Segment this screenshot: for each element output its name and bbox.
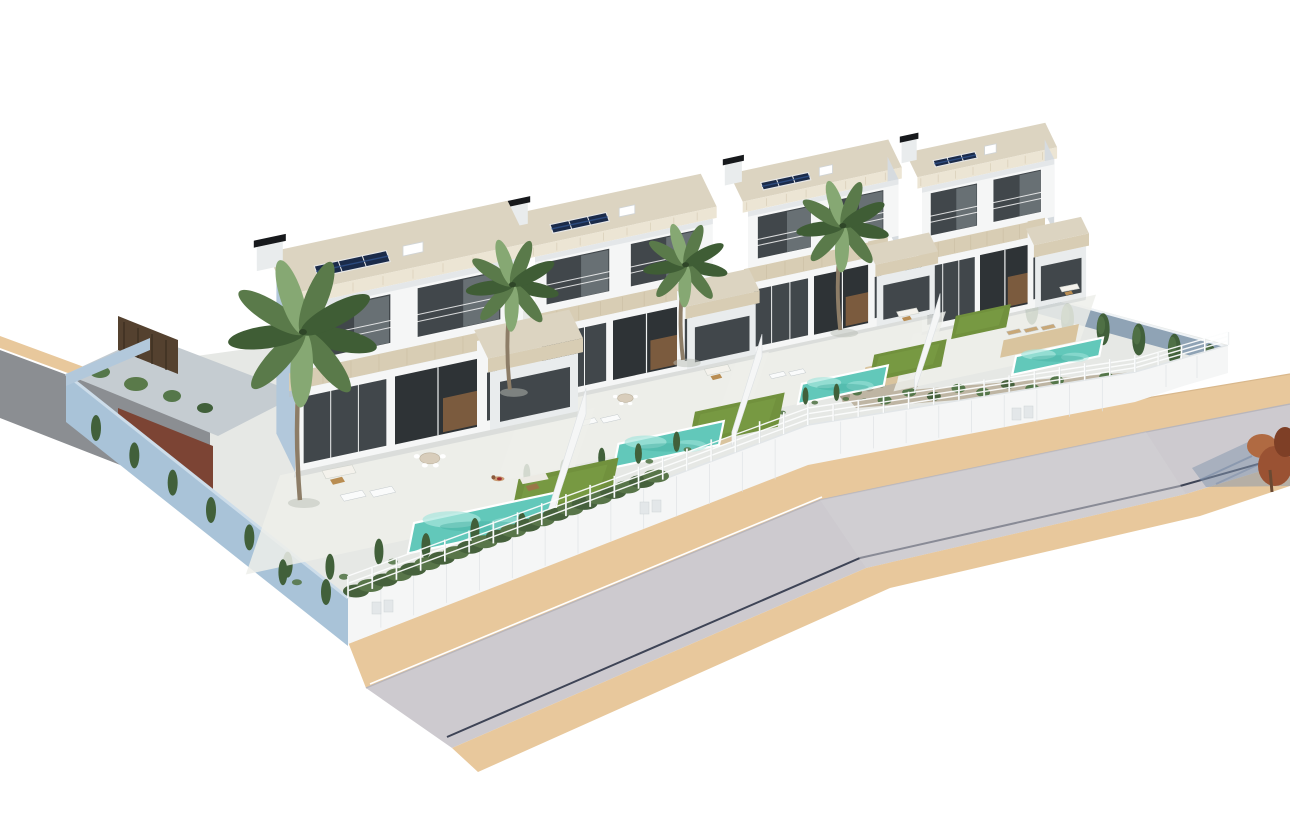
palm-crown-center xyxy=(299,329,307,335)
yard-cypress xyxy=(673,432,680,452)
cypress-small xyxy=(129,442,139,468)
palm-crown-center xyxy=(682,262,689,267)
cypress-small xyxy=(321,579,331,605)
dining-chair xyxy=(422,463,428,467)
yard-bush xyxy=(811,401,818,405)
yard-cypress xyxy=(278,559,287,585)
cypress-small xyxy=(206,497,216,523)
palm-crown-center xyxy=(839,223,846,228)
cypress-highlight xyxy=(1097,316,1105,334)
villa-development-render xyxy=(0,0,1290,840)
yard-cypress xyxy=(635,443,642,463)
yard-plant xyxy=(124,377,148,391)
swimsuit xyxy=(497,477,502,480)
chimney-stack xyxy=(725,161,742,185)
red-tree-trunk xyxy=(1270,470,1272,492)
interior-cabinet xyxy=(846,292,870,326)
palm-crown-center xyxy=(509,282,516,287)
pool-depth xyxy=(1032,355,1084,361)
dining-table xyxy=(618,394,634,403)
yard-plant xyxy=(197,403,213,413)
palm-shadow xyxy=(673,359,700,368)
meter-door xyxy=(640,502,649,514)
yard-bush xyxy=(292,579,302,585)
yard-bush xyxy=(645,459,653,464)
yard-plant xyxy=(163,390,181,402)
dining-chair xyxy=(414,454,420,458)
yard-bush xyxy=(842,397,849,401)
render-canvas xyxy=(0,0,1290,840)
yard-cypress xyxy=(834,384,840,401)
interior-cabinet xyxy=(1008,273,1029,307)
chimney-stack xyxy=(902,139,917,163)
interior-cabinet xyxy=(650,335,678,371)
pool-depth xyxy=(817,384,868,391)
dining-table xyxy=(420,453,440,464)
meter-door xyxy=(1012,408,1021,420)
meter-door xyxy=(372,602,381,614)
dining-chair xyxy=(633,395,638,398)
dining-chair xyxy=(613,395,618,398)
yard-cypress xyxy=(325,554,334,580)
palm-shadow xyxy=(288,498,320,508)
cypress-small xyxy=(168,470,178,496)
curtain xyxy=(581,250,608,297)
palm-shadow xyxy=(830,329,858,338)
cypress-small xyxy=(244,524,254,550)
palm-shadow xyxy=(500,388,528,397)
dining-chair xyxy=(440,454,446,458)
yard-cypress xyxy=(374,539,383,565)
cypress-highlight xyxy=(1133,327,1141,345)
cypress-small xyxy=(91,415,101,441)
person-head xyxy=(491,475,495,479)
meter-door xyxy=(384,600,393,612)
dining-chair xyxy=(433,463,439,467)
meter-door xyxy=(1024,406,1033,418)
dining-chair xyxy=(619,402,624,405)
meter-door xyxy=(652,500,661,512)
dining-chair xyxy=(628,402,633,405)
yard-cypress xyxy=(803,387,809,404)
